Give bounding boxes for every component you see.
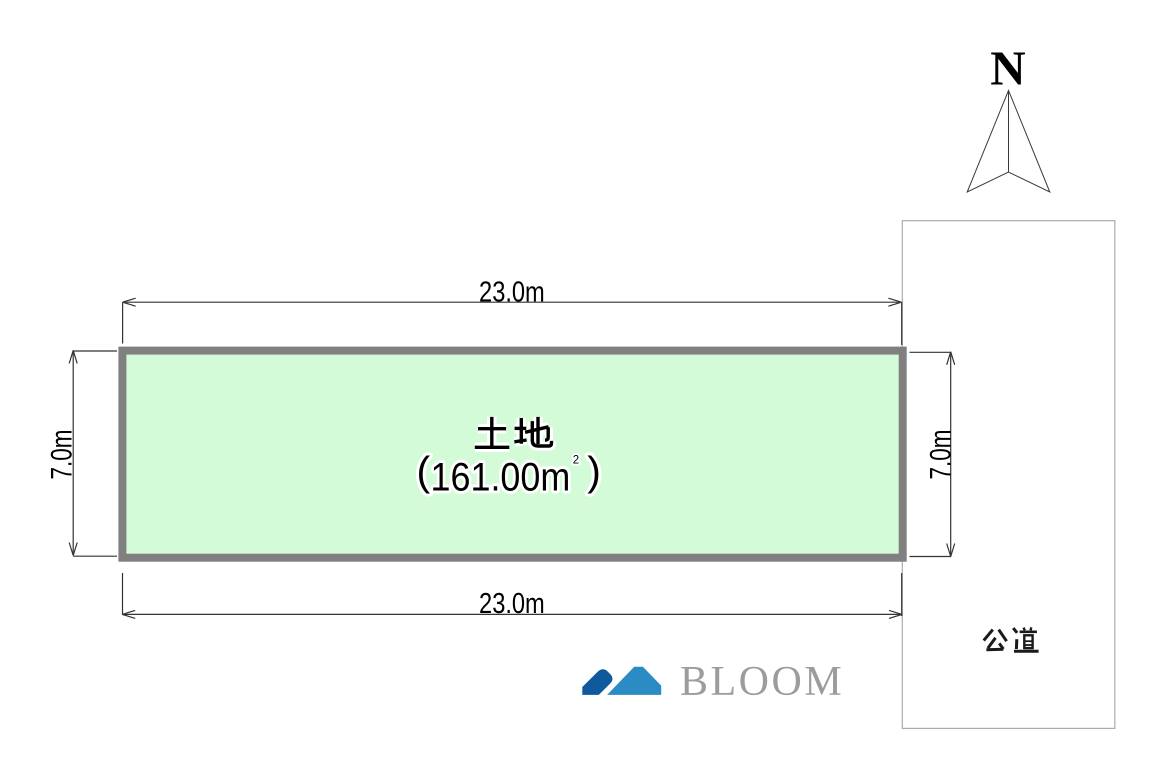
svg-text:23.0m: 23.0m	[479, 587, 545, 620]
svg-text:7.0m: 7.0m	[923, 430, 957, 480]
svg-text:2: 2	[573, 455, 579, 467]
svg-text:23.0m: 23.0m	[479, 275, 545, 308]
svg-text:): )	[587, 448, 601, 494]
svg-text:161.00m: 161.00m	[431, 456, 571, 500]
svg-text:7.0m: 7.0m	[44, 430, 78, 480]
svg-text:(: (	[417, 448, 431, 494]
svg-text:N: N	[990, 41, 1025, 96]
svg-text:BLOOM: BLOOM	[680, 659, 844, 705]
